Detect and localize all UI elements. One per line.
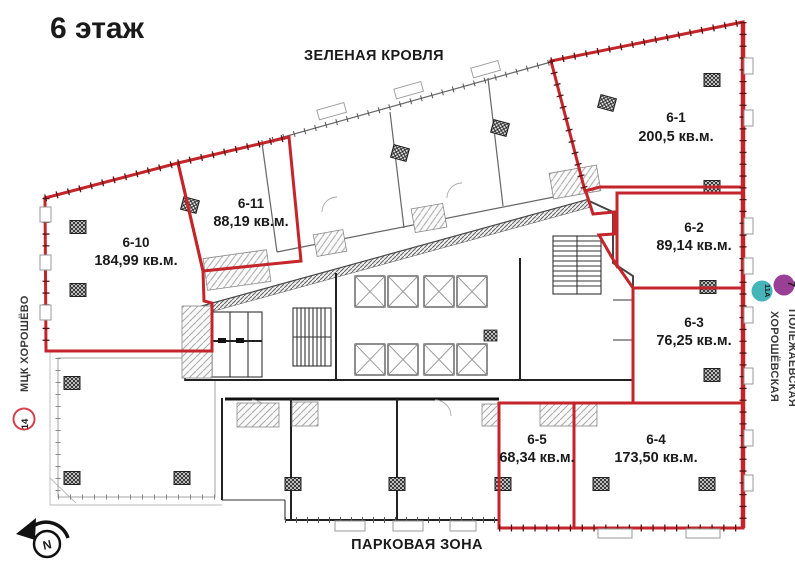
floor-plan-drawing: 6-10 184,99 кв.м. 6-11 88,19 кв.м. 6-1 2… <box>0 0 795 565</box>
zone-label-green-roof: ЗЕЛЕНАЯ КРОВЛЯ <box>304 48 444 64</box>
metro-line-11a-icon: 11А <box>752 281 773 302</box>
page-title: 6 этаж <box>50 12 145 45</box>
mcc-line-number: 14 <box>20 418 31 429</box>
metro-line-11a-number: 11А <box>763 284 772 298</box>
unit-number: 6-5 <box>527 432 547 447</box>
unit-outline <box>551 22 743 191</box>
window-bay <box>471 61 501 78</box>
unit-6-2[interactable]: 6-2 89,14 кв.м. <box>617 193 743 288</box>
transit-left: МЦК ХОРОШЁВО 14 <box>14 295 35 429</box>
mcc-line-14-icon: 14 <box>14 409 35 430</box>
north-compass-icon: N <box>16 518 68 557</box>
unit-number: 6-4 <box>646 432 666 447</box>
unit-area: 68,34 кв.м. <box>499 450 574 466</box>
unit-number: 6-1 <box>666 110 686 125</box>
unit-number: 6-10 <box>122 235 149 250</box>
station-label-polezhaevskaya: ПОЛЕЖАЕВСКАЯ <box>786 309 795 407</box>
unit-area: 89,14 кв.м. <box>656 238 731 254</box>
unit-area: 88,19 кв.м. <box>213 214 288 230</box>
unit-6-4[interactable]: 6-4 173,50 кв.м. <box>574 403 743 528</box>
unit-number: 6-3 <box>684 315 704 330</box>
unit-area: 200,5 кв.м. <box>638 129 713 145</box>
metro-line-7-number: 7 <box>785 281 795 287</box>
unit-number: 6-2 <box>684 220 704 235</box>
zone-label-park: ПАРКОВАЯ ЗОНА <box>351 537 483 553</box>
unit-area: 173,50 кв.м. <box>614 450 697 466</box>
unit-area: 76,25 кв.м. <box>656 333 731 349</box>
compass-north-letter: N <box>42 537 53 552</box>
unit-6-1[interactable]: 6-1 200,5 кв.м. <box>551 22 743 191</box>
window-bay <box>394 82 424 99</box>
unit-area: 184,99 кв.м. <box>94 253 177 269</box>
metro-line-7-icon: 7 <box>774 275 795 296</box>
floor-plan-page: 6-10 184,99 кв.м. 6-11 88,19 кв.м. 6-1 2… <box>0 0 795 565</box>
station-label-mck-khoroshevo: МЦК ХОРОШЁВО <box>18 295 31 392</box>
unit-6-3[interactable]: 6-3 76,25 кв.м. <box>633 288 743 403</box>
unit-number: 6-11 <box>238 196 265 211</box>
window-bay <box>317 103 347 120</box>
station-label-khoroshevskaya: ХОРОШЁВСКАЯ <box>768 311 781 402</box>
lower-rooms-band <box>222 398 499 531</box>
transit-right: 11А 7 ПОЛЕЖАЕВСКАЯ ХОРОШЁВСКАЯ <box>752 275 795 408</box>
